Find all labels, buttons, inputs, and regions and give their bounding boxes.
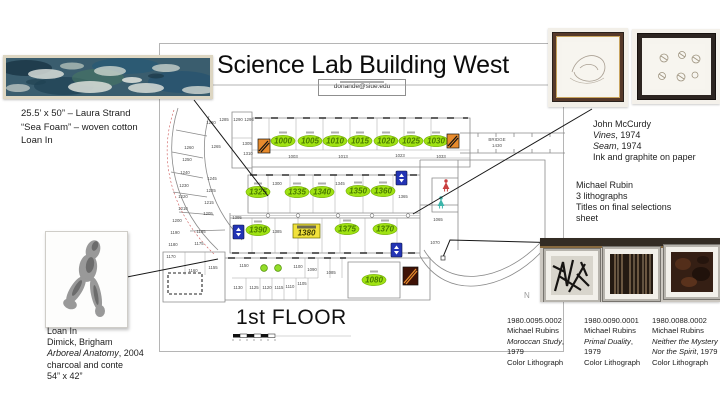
picture-frame: [638, 34, 715, 99]
artwork-title-line: Moroccan Study, 1979: [507, 337, 581, 358]
caption-line: charcoal and conte: [47, 360, 177, 371]
caption-line: 25.5’ x 50” – Laura Strand: [21, 107, 191, 121]
vines-sketch: [562, 42, 618, 94]
artist-name: Michael Rubins: [652, 326, 718, 336]
accession-number: 1980.0090.0001: [584, 316, 648, 326]
floor-label: 1st FLOOR: [236, 306, 347, 330]
rubin-note: Michael Rubin 3 lithographs Titles on fi…: [576, 180, 716, 224]
moroccan-study-frame: [544, 249, 600, 302]
lithograph-caption-2: 1980.0090.0001 Michael Rubins Primal Dua…: [584, 316, 648, 368]
moroccan-study-print: [551, 256, 593, 295]
neither-mystery-frame: [664, 245, 720, 299]
page-title: Science Lab Building West: [217, 51, 509, 80]
mccurdy-artwork-photo-1: [548, 28, 628, 107]
accession-number: 1980.0088.0002: [652, 316, 718, 326]
medium: Color Lithograph: [584, 358, 648, 368]
caption-line: 54” x 42”: [47, 371, 177, 382]
caption-line: Ink and graphite on paper: [593, 152, 718, 163]
caption-line: Titles on final selections: [576, 202, 716, 213]
picture-mat: [648, 44, 705, 89]
dimick-drawing: [46, 232, 125, 325]
caption-line: Dimick, Brigham: [47, 337, 177, 348]
caption-line: John McCurdy: [593, 119, 718, 130]
mccurdy-caption: John McCurdy Vines, 1974 Seam, 1974 Ink …: [593, 119, 718, 163]
artist-name: Michael Rubins: [584, 326, 648, 336]
dimick-artwork: [45, 231, 128, 328]
lithograph-caption-1: 1980.0095.0002 Michael Rubins Moroccan S…: [507, 316, 581, 368]
caption-line: Loan In: [21, 134, 191, 148]
artist-name: Michael Rubins: [507, 326, 581, 336]
seam-sketch: [648, 44, 708, 91]
caption-line: “Sea Foam” – woven cotton: [21, 121, 191, 135]
contact-box: donande@siue.edu: [318, 79, 406, 96]
caption-line: Vines, 1974: [593, 130, 718, 141]
accession-number: 1980.0095.0002: [507, 316, 581, 326]
lithograph-caption-3: 1980.0088.0002 Michael Rubins Neither th…: [652, 316, 718, 368]
primal-duality-frame: [603, 247, 660, 301]
caption-line: Seam, 1974: [593, 141, 718, 152]
caption-line: sheet: [576, 213, 716, 224]
caption-line: Michael Rubin: [576, 180, 716, 191]
sea-foam-artwork: [3, 55, 213, 99]
primal-duality-print: [610, 254, 653, 294]
mccurdy-artwork-photo-2: [632, 29, 720, 104]
caption-line: Loan In: [47, 326, 177, 337]
contact-note-smudge: [340, 81, 384, 83]
artwork-title-line: Primal Duality, 1979: [584, 337, 648, 358]
lithographs-photo: [540, 238, 720, 302]
contact-email: donande@siue.edu: [319, 83, 405, 91]
medium: Color Lithograph: [507, 358, 581, 368]
caption-line: Arboreal Anatomy, 2004: [47, 348, 177, 359]
dimick-caption: Loan In Dimick, Brigham Arboreal Anatomy…: [47, 326, 177, 382]
neither-mystery-print: [671, 252, 713, 292]
artwork-title-line: Neither the Mystery Nor the Spirit, 1979: [652, 337, 718, 358]
sea-foam-caption: 25.5’ x 50” – Laura Strand “Sea Foam” – …: [21, 107, 191, 148]
picture-mat: [562, 42, 614, 92]
caption-line: 3 lithographs: [576, 191, 716, 202]
picture-frame: [553, 33, 623, 101]
sea-foam-image: [6, 58, 210, 96]
medium: Color Lithograph: [652, 358, 718, 368]
